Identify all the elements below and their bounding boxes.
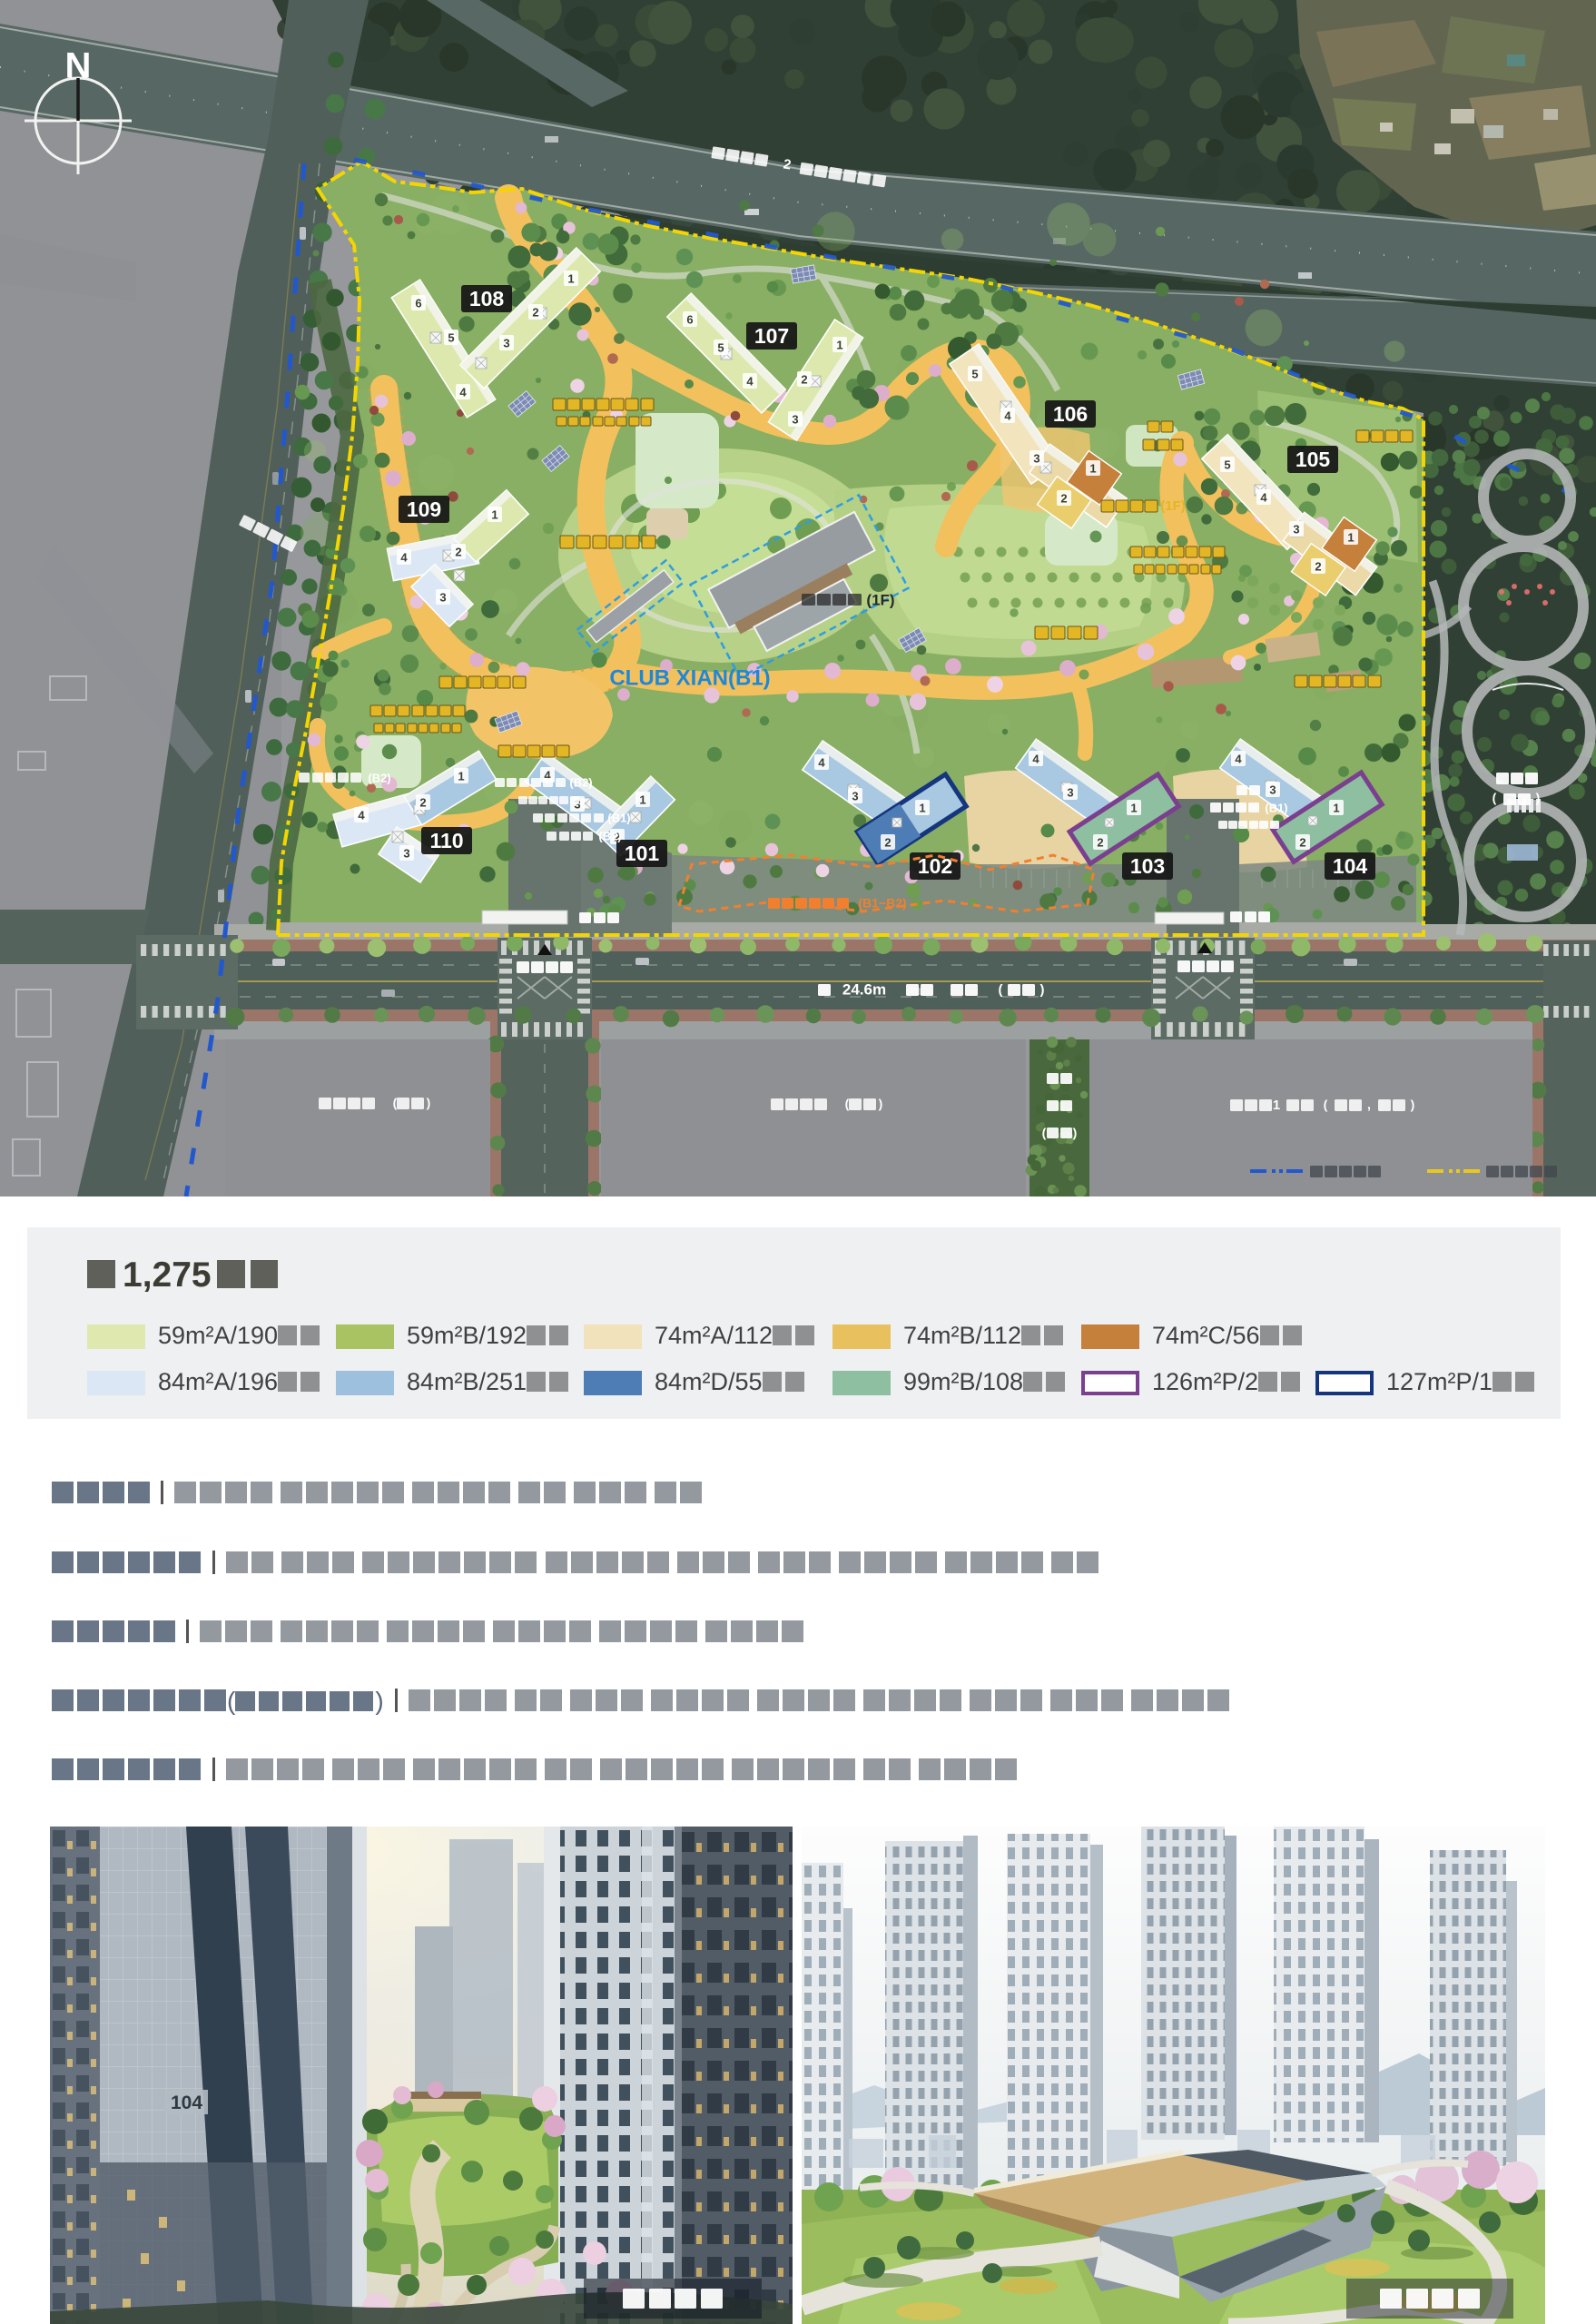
svg-text:2: 2 bbox=[1060, 491, 1067, 505]
svg-text:102: 102 bbox=[918, 854, 952, 878]
svg-text:3: 3 bbox=[792, 412, 798, 426]
svg-text:(B2): (B2) bbox=[598, 829, 621, 842]
svg-text:1: 1 bbox=[1089, 461, 1096, 475]
svg-text:110: 110 bbox=[429, 829, 463, 852]
svg-text:(B1~B2): (B1~B2) bbox=[858, 896, 906, 911]
svg-text:2: 2 bbox=[455, 545, 461, 558]
svg-text:2: 2 bbox=[532, 305, 538, 319]
svg-text:): ) bbox=[1040, 982, 1045, 998]
svg-text:(: ( bbox=[1493, 791, 1497, 805]
svg-text:3: 3 bbox=[852, 789, 858, 803]
svg-text:108: 108 bbox=[469, 287, 505, 310]
svg-text:(1F): (1F) bbox=[866, 591, 894, 608]
svg-text:4: 4 bbox=[818, 755, 825, 769]
svg-text:4: 4 bbox=[459, 385, 467, 399]
svg-text:4: 4 bbox=[1032, 752, 1039, 765]
svg-text:(: ( bbox=[845, 1097, 850, 1111]
svg-text:5: 5 bbox=[1224, 458, 1230, 471]
svg-text:,: , bbox=[1367, 1098, 1371, 1112]
svg-text:1: 1 bbox=[919, 801, 925, 814]
svg-text:2: 2 bbox=[1299, 835, 1305, 849]
svg-text:2: 2 bbox=[419, 795, 426, 809]
svg-text:4: 4 bbox=[746, 374, 754, 388]
svg-text:107: 107 bbox=[754, 324, 789, 348]
svg-text:6: 6 bbox=[686, 312, 693, 326]
svg-text:5: 5 bbox=[971, 367, 978, 380]
svg-text:103: 103 bbox=[1130, 854, 1165, 878]
svg-text:(: ( bbox=[393, 1096, 398, 1110]
svg-text:(1F): (1F) bbox=[1160, 498, 1186, 514]
svg-text:3: 3 bbox=[1293, 522, 1299, 536]
svg-text:(B2): (B2) bbox=[368, 771, 390, 784]
svg-text:2: 2 bbox=[1097, 835, 1103, 849]
svg-text:104: 104 bbox=[171, 2093, 202, 2113]
svg-text:(B1): (B1) bbox=[1265, 801, 1287, 814]
svg-text:3: 3 bbox=[503, 336, 509, 350]
svg-text:6: 6 bbox=[415, 296, 421, 310]
svg-text:24.6m: 24.6m bbox=[842, 980, 886, 998]
svg-text:(: ( bbox=[1324, 1098, 1328, 1112]
svg-text:2: 2 bbox=[1315, 559, 1321, 573]
svg-text:106: 106 bbox=[1053, 402, 1088, 426]
svg-text:4: 4 bbox=[1260, 490, 1267, 504]
svg-text:(: ( bbox=[1042, 1126, 1047, 1140]
svg-text:101: 101 bbox=[625, 842, 660, 865]
svg-text:1: 1 bbox=[458, 769, 464, 783]
svg-text:105: 105 bbox=[1296, 448, 1331, 471]
svg-text:5: 5 bbox=[448, 330, 454, 344]
svg-text:109: 109 bbox=[407, 497, 441, 521]
svg-text:1: 1 bbox=[491, 507, 498, 521]
svg-text:(B2): (B2) bbox=[569, 775, 592, 789]
svg-text:): ) bbox=[1073, 1126, 1078, 1140]
svg-text:(B1): (B1) bbox=[607, 811, 630, 824]
svg-text:5: 5 bbox=[717, 340, 724, 354]
svg-text:CLUB XIAN(B1): CLUB XIAN(B1) bbox=[609, 665, 770, 690]
svg-text:104: 104 bbox=[1333, 854, 1368, 878]
svg-text:4: 4 bbox=[1004, 409, 1011, 422]
svg-text:2: 2 bbox=[801, 372, 807, 386]
svg-text:(: ( bbox=[999, 982, 1003, 998]
svg-text:4: 4 bbox=[1235, 752, 1242, 765]
svg-text:1: 1 bbox=[836, 338, 842, 351]
svg-text:1: 1 bbox=[639, 793, 645, 806]
svg-text:1: 1 bbox=[1347, 530, 1354, 544]
svg-text:3: 3 bbox=[439, 590, 446, 604]
svg-text:4: 4 bbox=[358, 808, 365, 822]
svg-text:): ) bbox=[427, 1096, 431, 1110]
svg-text:): ) bbox=[1536, 791, 1541, 805]
svg-text:N: N bbox=[65, 46, 92, 86]
svg-text:3: 3 bbox=[1033, 451, 1039, 465]
svg-text:1: 1 bbox=[1333, 801, 1339, 814]
svg-text:2: 2 bbox=[884, 835, 891, 849]
svg-text:3: 3 bbox=[1269, 783, 1276, 796]
svg-text:): ) bbox=[879, 1097, 883, 1111]
svg-text:4: 4 bbox=[400, 550, 408, 564]
svg-text:3: 3 bbox=[1067, 785, 1073, 799]
svg-text:3: 3 bbox=[403, 846, 409, 860]
svg-text:1: 1 bbox=[567, 271, 574, 285]
svg-text:1: 1 bbox=[1273, 1098, 1280, 1113]
svg-text:1: 1 bbox=[1130, 801, 1137, 814]
svg-text:): ) bbox=[1411, 1098, 1415, 1112]
